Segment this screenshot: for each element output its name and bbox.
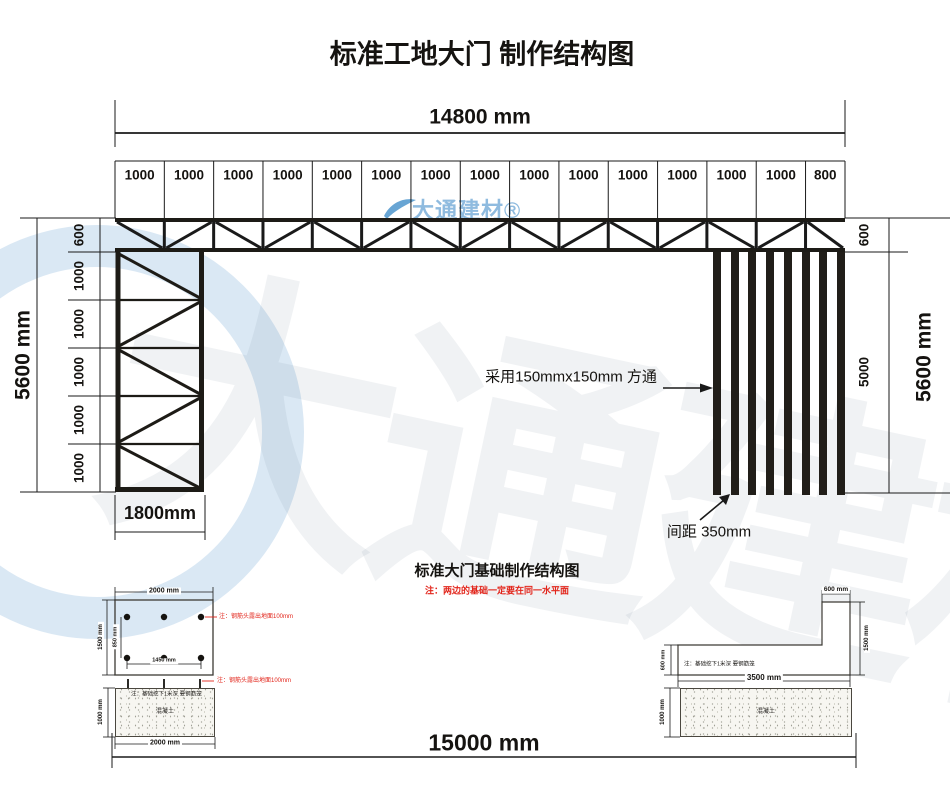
left-segment-label: 1000 [72,453,86,483]
right-left-height-dimension: 600 mm [661,648,667,673]
right-section-depth-note: 注：基础挖下1米深 要钢筋笼 [684,662,755,668]
plan-row-gap-dimension: 850 mm [113,625,119,650]
right-bottom-width-dimension: 3500 mm [745,674,783,682]
square-tube-bar [802,252,810,495]
foundation-title: 标准大门基础制作结构图 [414,564,579,579]
top-segment-label: 1000 [371,168,401,182]
page-title: 标准工地大门 制作结构图 [330,42,635,69]
left-segment-label: 600 [72,224,86,247]
left-truss-column [115,252,204,492]
square-tube-bar [766,252,774,495]
top-segment-label: 1000 [618,168,648,182]
spacing-note: 间距 350mm [667,525,751,540]
square-tube-bar [784,252,792,495]
top-segment-label: 1000 [569,168,599,182]
tube-callout-arrow [663,384,713,393]
left-section-width-dimension: 2000 mm [148,740,182,747]
foundation-level-note: 注：两边的基础一定要在同一水平面 [425,587,569,596]
plan-width-dimension: 2000 mm [147,588,181,595]
top-segment-label: 1000 [174,168,204,182]
overall-width-dimension: 15000 mm [428,732,539,755]
plan-rebar-note: 注：钢筋头露出地面100mm [219,614,293,620]
top-segment-label: 1000 [125,168,155,182]
top-segment-label: 1000 [273,168,303,182]
top-segment-label: 800 [814,168,837,182]
left-section-material-label: 混凝土 [156,709,174,715]
top-segment-label: 1000 [470,168,500,182]
square-tube-bar [731,252,739,495]
tube-spec-note: 采用150mmx150mm 方通 [485,370,657,385]
left-section-rebar-note: 注：钢筋头露出地面100mm [217,678,291,684]
top-segment-label: 1000 [766,168,796,182]
left-total-dimension: 5600 mm [13,310,34,400]
left-segment-label: 1000 [72,405,86,435]
top-segment-label: 1000 [322,168,352,182]
top-segment-label: 1000 [717,168,747,182]
right-total-dimension: 5600 mm [914,312,935,402]
right-5000-dimension: 5000 [857,357,871,387]
top-segment-label: 1000 [519,168,549,182]
right-top-width-dimension: 600 mm [822,587,850,594]
plan-col-gap-dimension: 1450 mm [150,658,178,664]
top-segment-label: 1000 [667,168,697,182]
square-tube-bar [748,252,756,495]
left-section-depth-note: 注：基础挖下1米深 要钢筋笼 [131,692,202,698]
column-width-dimension-label: 1800mm [124,504,196,522]
top-truss [115,220,845,250]
right-height-dimension: 1500 mm [864,623,870,653]
right-section-height-dimension: 1000 mm [660,697,666,727]
right-600-dimension: 600 [857,224,871,247]
top-segment-label: 1000 [421,168,451,182]
left-segment-label: 1000 [72,261,86,291]
right-section-material-label: 混凝土 [757,709,775,715]
top-segment-label: 1000 [223,168,253,182]
total-width-dimension: 14800 mm [429,107,531,128]
left-segment-label: 1000 [72,357,86,387]
left-segment-label: 1000 [72,309,86,339]
plan-height-dimension: 1500 mm [98,622,104,652]
left-section-height-dimension: 1000 mm [98,697,104,727]
square-tube-bar [837,252,845,495]
square-tube-bar [819,252,827,495]
blueprint-page: { "title": "标准工地大门 制作结构图", "watermark": … [0,0,950,805]
spacing-callout-arrow [700,494,730,520]
square-tube-bar [713,252,721,495]
